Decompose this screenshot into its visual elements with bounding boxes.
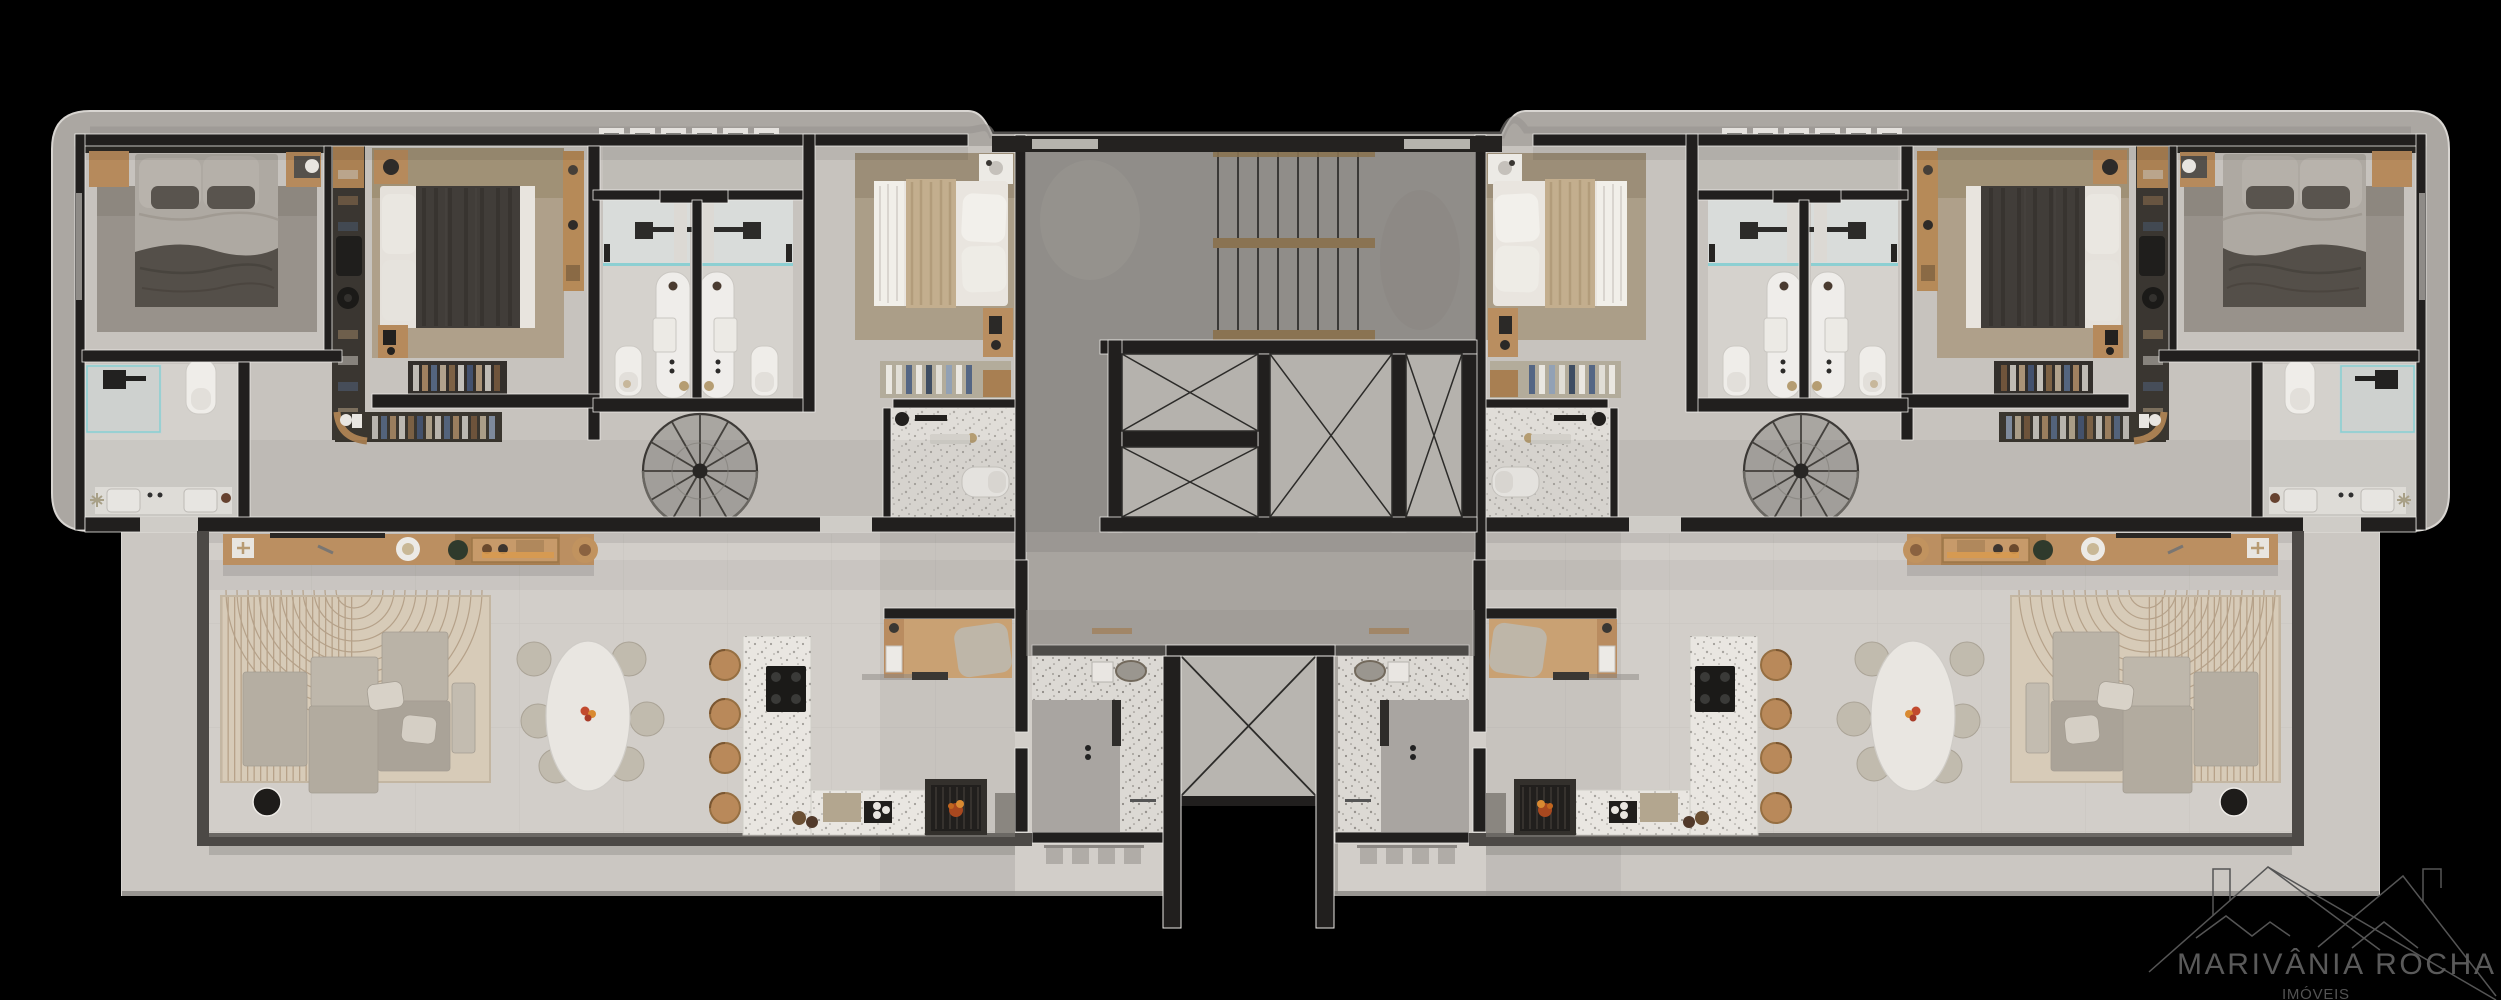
svg-text:IMÓVEIS: IMÓVEIS bbox=[2282, 986, 2354, 1000]
svg-text:MARIVÂNIA ROCHA: MARIVÂNIA ROCHA bbox=[2177, 948, 2497, 981]
